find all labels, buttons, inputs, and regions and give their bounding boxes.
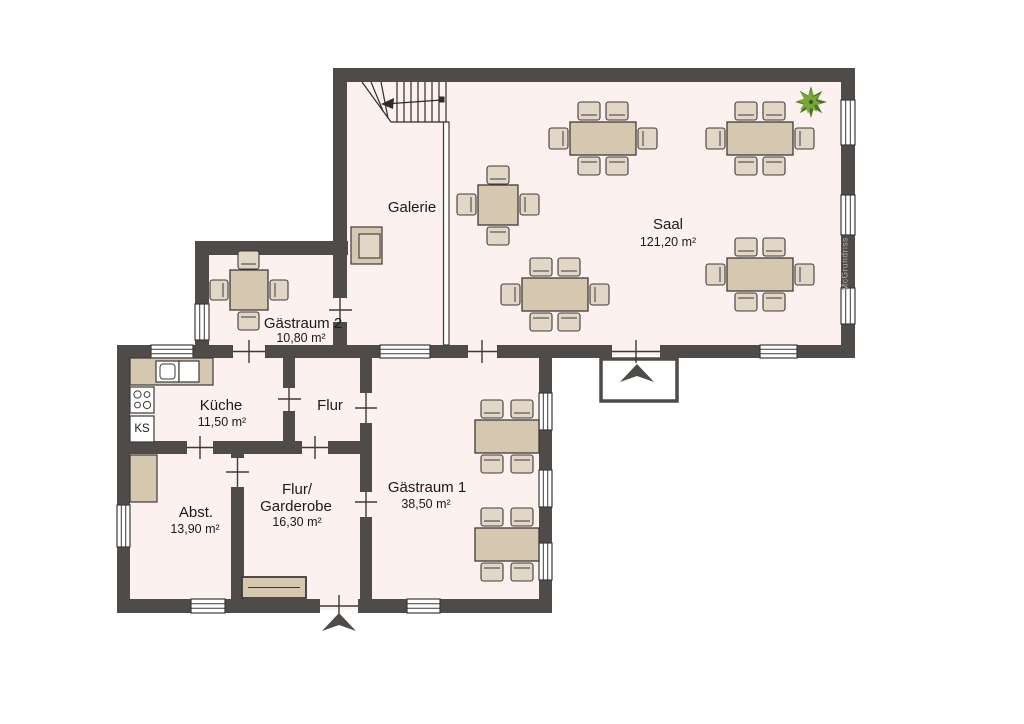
- room-label-abstellraum: Abst.: [179, 504, 213, 521]
- entrance-arrow: [322, 613, 356, 631]
- room-label-kueche: Küche: [200, 397, 243, 414]
- window: [407, 599, 440, 613]
- window: [841, 195, 855, 235]
- armchair: [351, 227, 382, 264]
- wardrobe-bench: [242, 577, 306, 598]
- room-area-gaestraum2: 10,80 m²: [276, 331, 325, 345]
- window: [760, 345, 797, 358]
- room-label-flur: Flur: [317, 397, 343, 414]
- room-area-flur-garderobe: 16,30 m²: [272, 515, 321, 529]
- window: [380, 345, 430, 358]
- fridge-label: KS: [134, 423, 150, 435]
- room-label-gaestraum2: Gästraum 2: [264, 315, 342, 332]
- room-label-galerie: Galerie: [388, 199, 436, 216]
- window: [539, 470, 552, 507]
- room-label-flur-garderobe-1: Flur/: [282, 481, 313, 498]
- room-label-saal: Saal: [653, 216, 683, 233]
- window: [539, 393, 552, 430]
- room-label-flur-garderobe-2: Garderobe: [260, 498, 332, 515]
- kitchen-worktop: [179, 361, 199, 382]
- storage-shelf: [130, 455, 157, 502]
- room-label-gaestraum1: Gästraum 1: [388, 479, 466, 496]
- fridge: KS: [130, 416, 154, 442]
- watermark: McGrundriss: [840, 237, 850, 291]
- window: [117, 505, 130, 547]
- floor-plan: KS Galerie Saal 121,20 m² Gästraum 2 10,…: [0, 0, 1024, 724]
- room-area-saal: 121,20 m²: [640, 235, 696, 249]
- room-area-abstellraum: 13,90 m²: [170, 522, 219, 536]
- room-area-kueche: 11,50 m²: [198, 415, 246, 429]
- gallery-railing: [444, 122, 450, 345]
- entrance-porch: [601, 359, 677, 401]
- kitchen-sink: [156, 361, 179, 382]
- stove: [130, 387, 154, 413]
- floor-plan-page: KS Galerie Saal 121,20 m² Gästraum 2 10,…: [0, 0, 1024, 724]
- window: [151, 345, 193, 358]
- window: [539, 543, 552, 580]
- room-area-gaestraum1: 38,50 m²: [401, 497, 450, 511]
- plant-icon: [795, 86, 827, 118]
- window: [191, 599, 225, 613]
- window: [841, 288, 855, 324]
- window: [841, 100, 855, 145]
- window: [195, 304, 209, 340]
- stair-start-marker: [439, 97, 445, 103]
